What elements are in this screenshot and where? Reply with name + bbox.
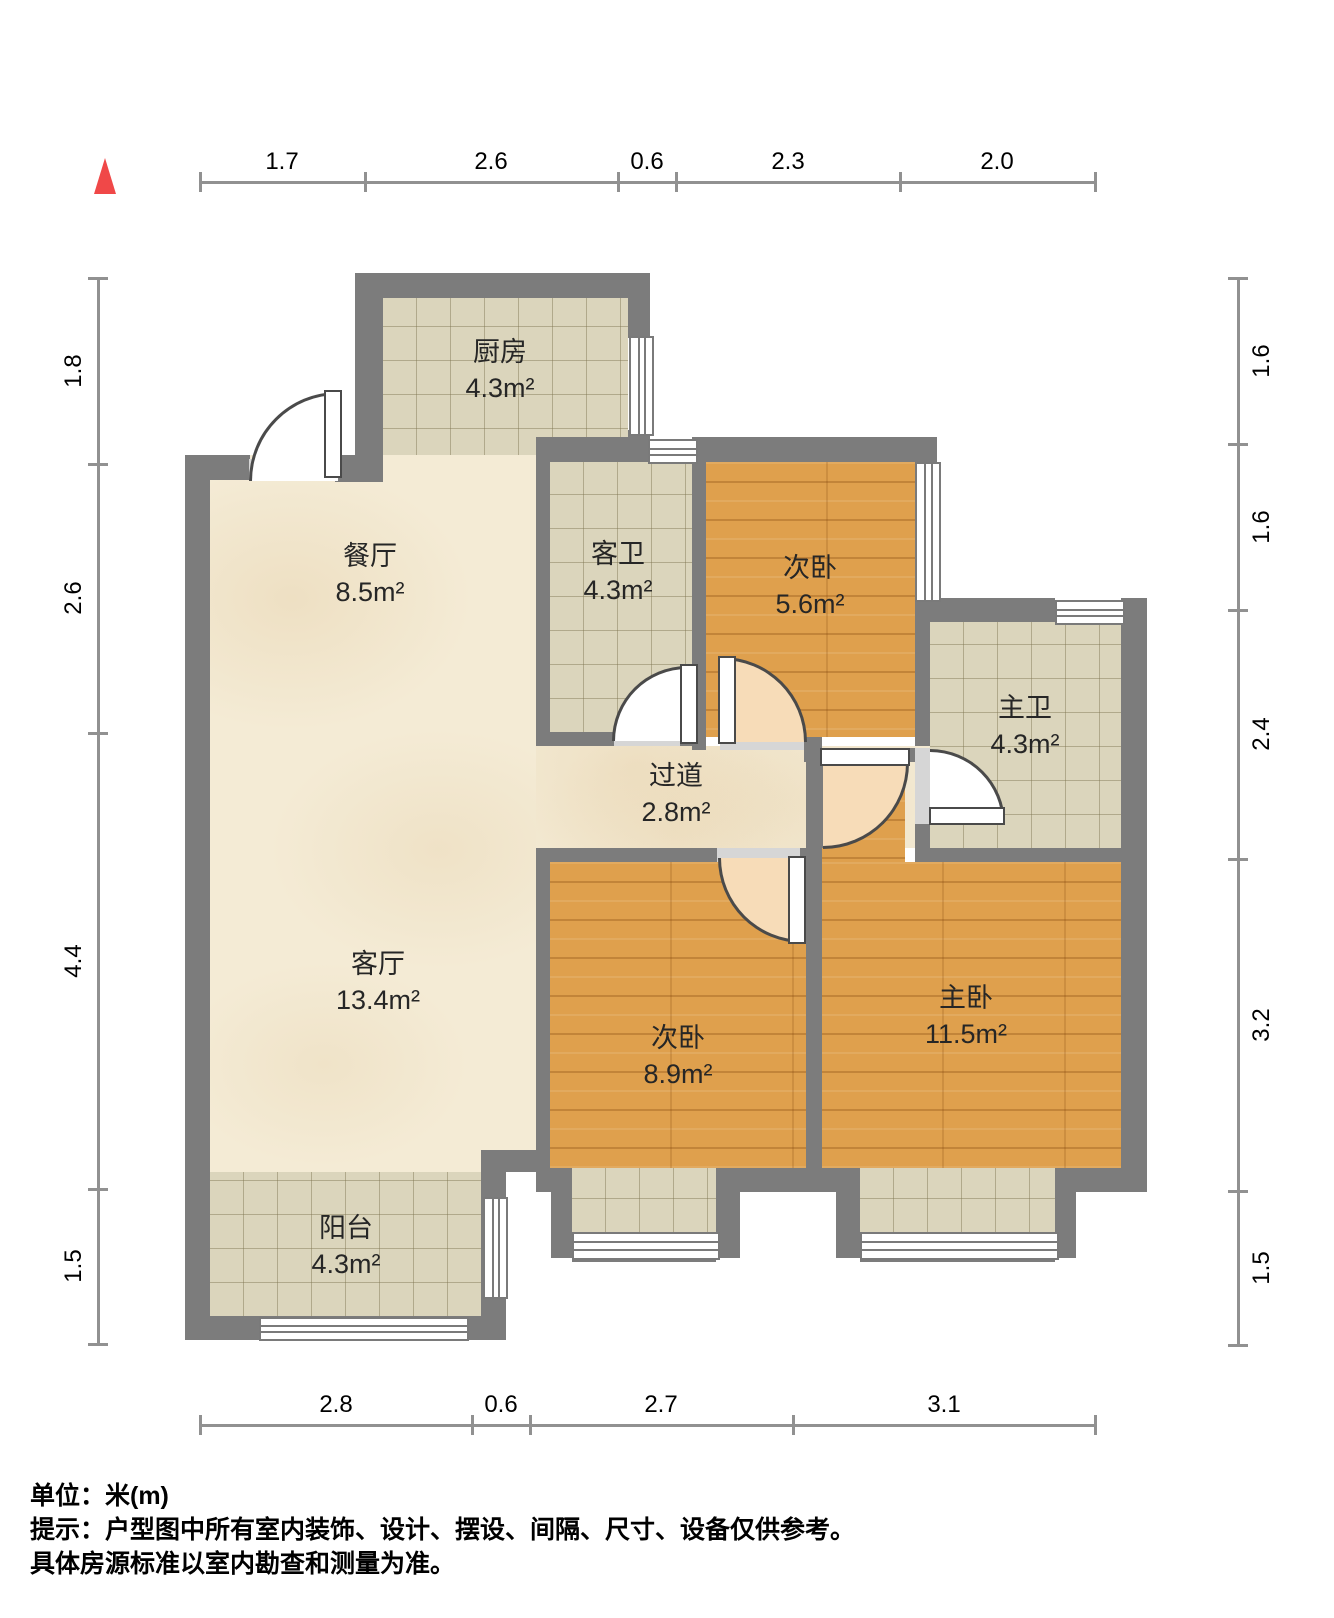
wall xyxy=(806,762,822,1168)
dim-tick xyxy=(1094,1415,1097,1435)
dim-tick xyxy=(88,1188,108,1191)
wall xyxy=(1076,1168,1147,1192)
wall xyxy=(822,1168,836,1192)
note-unit: 单位：米(m) xyxy=(30,1476,169,1512)
dim-tick xyxy=(1094,172,1097,192)
floor-bay-window-2 xyxy=(860,1168,1055,1232)
room-area: 13.4m² xyxy=(336,982,420,1018)
wall xyxy=(536,732,614,746)
door-leaf-guest-bath xyxy=(680,664,698,744)
dim-label: 1.6 xyxy=(1248,510,1276,543)
window-kitchen-corner xyxy=(648,439,698,464)
note-tip-line2: 具体房源标准以室内勘查和测量为准。 xyxy=(30,1544,455,1580)
dim-label: 1.6 xyxy=(1248,344,1276,377)
dim-tick xyxy=(88,277,108,280)
dim-line-left xyxy=(97,278,100,1344)
dim-line-top xyxy=(200,181,1095,184)
threshold-master-bath xyxy=(915,748,930,824)
dim-label: 1.7 xyxy=(265,148,298,176)
dim-label: 1.5 xyxy=(1248,1251,1276,1284)
north-arrow-icon xyxy=(94,158,116,194)
wall xyxy=(536,848,717,862)
room-label-master-bedroom: 主卧 11.5m² xyxy=(925,980,1007,1052)
room-name: 主卫 xyxy=(990,690,1059,726)
dim-line-right xyxy=(1237,278,1240,1346)
door-leaf-master-bedroom xyxy=(820,748,910,766)
room-name: 餐厅 xyxy=(335,538,404,574)
dim-label: 1.8 xyxy=(60,354,88,387)
room-area: 4.3m² xyxy=(990,726,1059,762)
wall xyxy=(915,824,930,848)
door-leaf-bedroom-mid xyxy=(788,856,806,944)
wall xyxy=(1121,598,1147,1192)
room-area: 11.5m² xyxy=(925,1016,1007,1052)
dim-label: 2.6 xyxy=(60,581,88,614)
dim-tick xyxy=(529,1415,532,1435)
dim-label: 2.8 xyxy=(319,1391,352,1419)
room-area: 8.5m² xyxy=(335,574,404,610)
room-name: 次卧 xyxy=(775,550,844,586)
dim-tick xyxy=(1228,443,1248,446)
dim-tick xyxy=(675,172,678,192)
window-bedroom-small xyxy=(915,462,941,602)
dim-label: 2.0 xyxy=(980,148,1013,176)
note-tip-line1: 提示：户型图中所有室内装饰、设计、摆设、间隔、尺寸、设备仅供参考。 xyxy=(30,1510,855,1546)
floor-plan-canvas: 厨房 4.3m² 餐厅 8.5m² 客卫 4.3m² 次卧 5.6m² 主卫 4… xyxy=(0,0,1334,1618)
room-label-balcony: 阳台 4.3m² xyxy=(311,1210,380,1282)
room-area: 4.3m² xyxy=(465,370,534,406)
wall xyxy=(335,455,383,482)
window-balcony-front xyxy=(259,1317,469,1341)
door-leaf-entry xyxy=(324,390,342,478)
dim-label: 2.6 xyxy=(474,148,507,176)
room-area: 4.3m² xyxy=(311,1246,380,1282)
dim-tick xyxy=(88,1343,108,1346)
room-name: 主卧 xyxy=(925,980,1007,1016)
room-label-guest-bath: 客卫 4.3m² xyxy=(583,536,652,608)
room-label-kitchen: 厨房 4.3m² xyxy=(465,334,534,406)
dim-tick xyxy=(792,1415,795,1435)
door-leaf-bedroom-small xyxy=(718,656,736,744)
dim-tick xyxy=(1228,1190,1248,1193)
room-name: 客厅 xyxy=(336,946,420,982)
dim-tick xyxy=(364,172,367,192)
window-balcony-side xyxy=(483,1197,508,1299)
wall xyxy=(836,1168,860,1258)
bay-window-bedroom-mid xyxy=(572,1232,720,1260)
room-name: 过道 xyxy=(641,758,710,794)
wall xyxy=(536,437,648,462)
dim-label: 1.5 xyxy=(60,1249,88,1282)
floor-bay-window-1 xyxy=(572,1168,716,1232)
wall xyxy=(355,273,383,462)
dim-label: 2.7 xyxy=(644,1391,677,1419)
dim-label: 0.6 xyxy=(630,148,663,176)
room-label-dining: 餐厅 8.5m² xyxy=(335,538,404,610)
room-area: 8.9m² xyxy=(643,1056,712,1092)
dim-label: 3.2 xyxy=(1248,1008,1276,1041)
room-label-bedroom-mid: 次卧 8.9m² xyxy=(643,1020,712,1092)
wall xyxy=(740,1168,822,1192)
wall xyxy=(692,437,937,462)
wall xyxy=(355,273,650,298)
room-area: 2.8m² xyxy=(641,794,710,830)
room-name: 次卧 xyxy=(643,1020,712,1056)
dim-label: 3.1 xyxy=(927,1391,960,1419)
dim-line-bottom xyxy=(200,1424,1095,1427)
room-label-living: 客厅 13.4m² xyxy=(336,946,420,1018)
dim-label: 0.6 xyxy=(484,1391,517,1419)
wall xyxy=(915,848,1121,862)
room-label-master-bath: 主卫 4.3m² xyxy=(990,690,1059,762)
room-area: 5.6m² xyxy=(775,586,844,622)
wall xyxy=(481,1150,545,1172)
dim-tick xyxy=(899,172,902,192)
wall xyxy=(185,455,210,1340)
room-label-bedroom-small: 次卧 5.6m² xyxy=(775,550,844,622)
dim-tick xyxy=(1228,858,1248,861)
dim-tick xyxy=(1228,1344,1248,1347)
dim-tick xyxy=(1228,609,1248,612)
window-kitchen xyxy=(629,336,654,436)
dim-tick xyxy=(199,1415,202,1435)
dim-tick xyxy=(617,172,620,192)
bay-window-master xyxy=(860,1232,1059,1260)
wall xyxy=(915,622,930,746)
wall xyxy=(551,1168,572,1258)
dim-tick xyxy=(88,732,108,735)
window-master-bath xyxy=(1055,600,1125,625)
dim-tick xyxy=(199,172,202,192)
dim-label: 2.3 xyxy=(771,148,804,176)
door-leaf-master-bath xyxy=(929,807,1005,825)
room-name: 厨房 xyxy=(465,334,534,370)
room-name: 客卫 xyxy=(583,536,652,572)
room-name: 阳台 xyxy=(311,1210,380,1246)
dim-tick xyxy=(88,463,108,466)
wall xyxy=(536,848,550,1168)
dim-tick xyxy=(1228,277,1248,280)
room-area: 4.3m² xyxy=(583,572,652,608)
room-label-hallway: 过道 2.8m² xyxy=(641,758,710,830)
wall xyxy=(628,298,650,338)
dim-label: 4.4 xyxy=(60,944,88,977)
dim-tick xyxy=(471,1415,474,1435)
wall xyxy=(536,462,550,732)
dim-label: 2.4 xyxy=(1248,717,1276,750)
